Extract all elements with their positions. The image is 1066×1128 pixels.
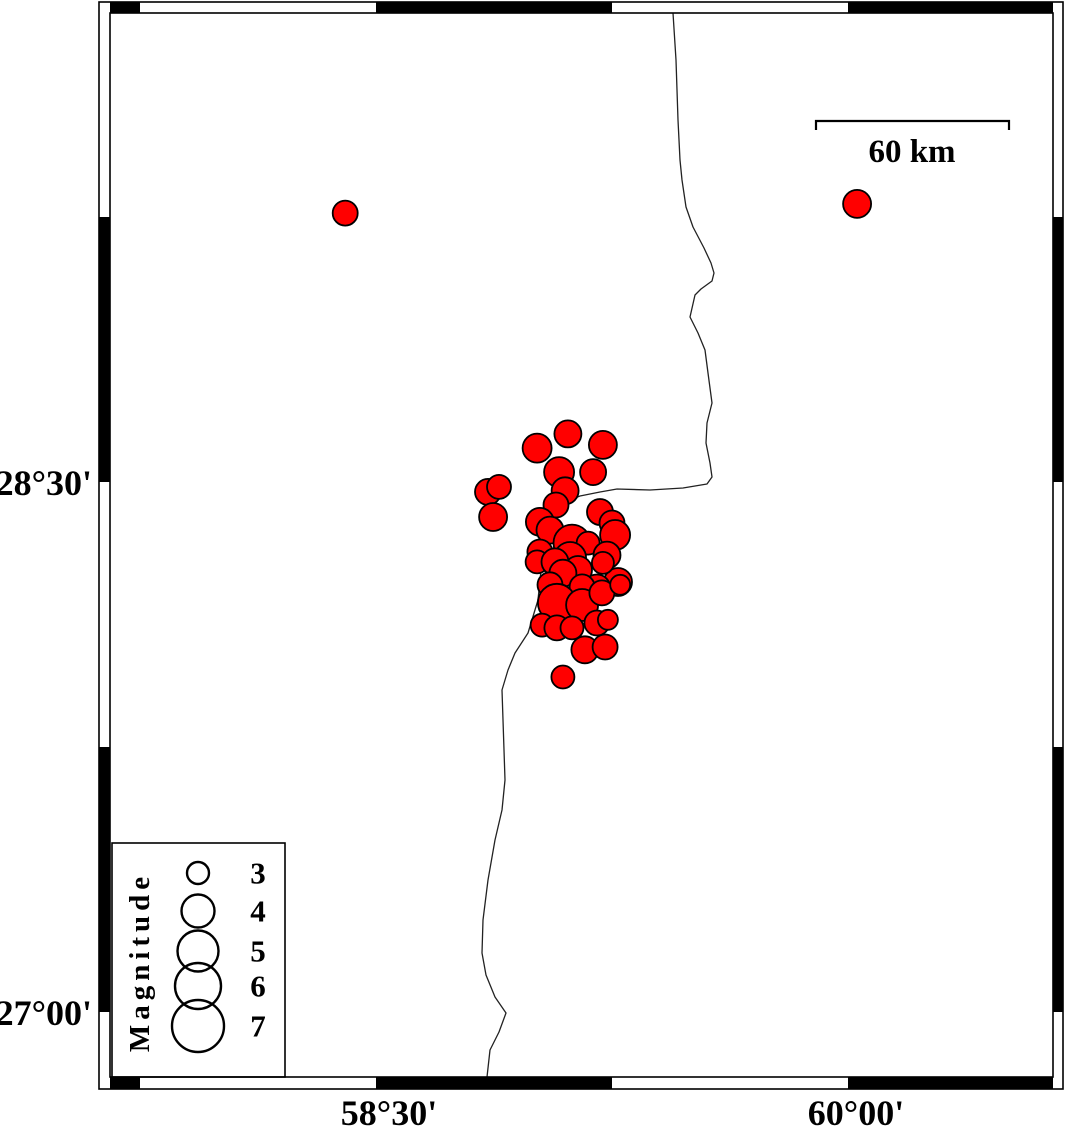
earthquake-point: [593, 635, 618, 660]
earthquake-point: [843, 190, 871, 218]
earthquake-point: [580, 459, 606, 485]
earthquake-point: [589, 431, 617, 459]
lat-axis-label-bottom: 27°00': [0, 993, 92, 1033]
lon-axis-label-left: 58°30': [341, 1093, 437, 1128]
legend-magnitude-value: 7: [250, 1009, 266, 1044]
earthquake-point: [610, 575, 630, 595]
earthquake-point: [592, 552, 614, 574]
earthquake-point: [561, 616, 584, 639]
earthquake-point: [333, 201, 358, 226]
legend-magnitude-value: 5: [250, 934, 266, 969]
lon-axis-label-right: 60°00': [808, 1093, 904, 1128]
legend-magnitude-value: 4: [250, 894, 266, 929]
frame-tick-segment: [848, 2, 1053, 13]
frame-tick-segment: [99, 217, 110, 482]
earthquake-point: [487, 475, 511, 499]
earthquake-point: [554, 420, 581, 447]
lat-axis-label-top: 28°30': [0, 463, 92, 503]
frame-tick-segment: [376, 1077, 612, 1089]
earthquake-point: [551, 666, 574, 689]
legend-title: Magnitude: [124, 872, 156, 1052]
seismicity-map: 60 km Magnitude 34567 28°30' 27°00' 58°3…: [0, 0, 1066, 1128]
frame-tick-segment: [110, 2, 140, 13]
earthquake-point: [598, 610, 618, 630]
frame-tick-segment: [376, 2, 612, 13]
legend-magnitude-value: 3: [250, 856, 266, 891]
frame-tick-segment: [110, 1077, 140, 1089]
earthquake-point: [479, 503, 507, 531]
frame-tick-segment: [1053, 217, 1063, 482]
frame-tick-segment: [1053, 747, 1063, 1012]
legend-magnitude-value: 6: [250, 969, 266, 1004]
earthquake-point: [523, 434, 552, 463]
scale-bar-label: 60 km: [868, 134, 955, 170]
frame-tick-segment: [848, 1077, 1053, 1089]
frame-tick-segment: [99, 747, 110, 1012]
